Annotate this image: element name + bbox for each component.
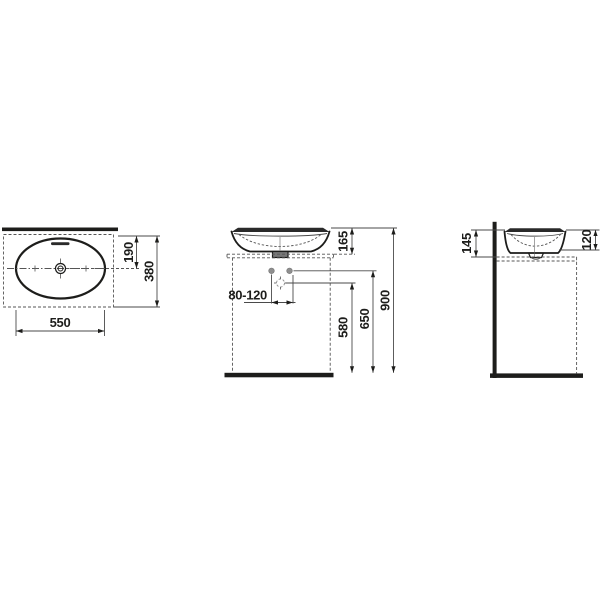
dim-drain-offset: 80-120 (228, 275, 295, 305)
water-supply-point-right (287, 268, 293, 274)
dim-overall-height: 900 (377, 228, 395, 373)
basin-rim-front (232, 228, 330, 232)
wall-line-side (493, 222, 497, 378)
basin-inner-rim-side (507, 234, 563, 237)
floor-bar-front (225, 373, 334, 378)
basin-rim-side (505, 228, 566, 232)
dim-drain-height: 580 (335, 283, 354, 373)
dim-label-145: 145 (459, 233, 474, 254)
floor-bar-side (490, 373, 583, 378)
dim-label-165: 165 (335, 231, 350, 252)
countertop-outline-dashed (4, 235, 114, 308)
drawing-canvas: 190 380 550 (0, 0, 600, 600)
dim-width: 550 (16, 310, 105, 336)
waste-outlet-icon (274, 277, 287, 290)
dim-label-580: 580 (335, 317, 350, 338)
basin-outer-profile-front (232, 232, 330, 252)
dim-supply-height: 650 (357, 271, 375, 373)
basin-inner-rim-front (234, 234, 327, 237)
front-view: 165 80-120 580 650 (225, 228, 398, 377)
water-supply-point-left (269, 268, 275, 274)
dim-label-190: 190 (121, 242, 136, 263)
dim-label-650: 650 (357, 309, 372, 330)
washbasin-technical-drawing: 190 380 550 (0, 0, 600, 600)
top-view: 190 380 550 (2, 228, 160, 337)
side-view: 145 120 (459, 222, 600, 378)
dim-label-900: 900 (377, 290, 392, 311)
dim-label-380: 380 (141, 261, 156, 282)
overflow-slot (51, 242, 70, 245)
dim-label-120: 120 (579, 230, 594, 251)
dim-label-550: 550 (50, 315, 71, 330)
dim-basin-height: 165 (335, 228, 354, 254)
dim-rim-above-counter: 145 (459, 230, 505, 257)
dim-label-80-120: 80-120 (228, 288, 267, 303)
wall-section-bar (2, 228, 118, 232)
